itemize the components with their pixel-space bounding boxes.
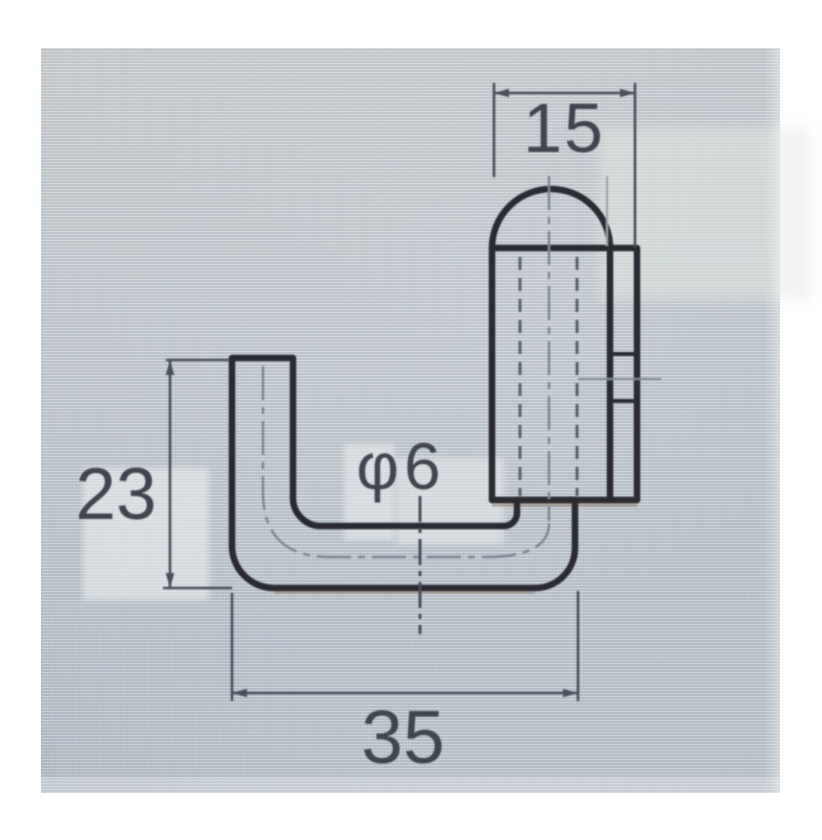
arrow-right-icon <box>563 689 578 698</box>
dimension-arrowheads <box>166 89 635 698</box>
screenshot-root: 15 23 35 φ6 <box>0 0 822 840</box>
arrow-left-icon <box>494 89 509 98</box>
head-dome-arc <box>492 189 610 248</box>
photo-chromatic-fringe <box>274 505 637 592</box>
collar-band-marks <box>610 354 637 401</box>
arrow-down-icon <box>166 573 175 588</box>
dim-arm-height <box>164 360 231 588</box>
label-arm-height: 23 <box>75 454 156 535</box>
label-base-width: 35 <box>361 695 444 779</box>
arrow-right-icon <box>620 89 635 98</box>
dim-base-width <box>232 592 578 700</box>
label-head-width: 15 <box>523 89 605 167</box>
arrow-up-icon <box>166 360 175 375</box>
technical-drawing: 15 23 35 φ6 <box>0 0 822 840</box>
arrow-left-icon <box>232 689 247 698</box>
label-bar-diameter: φ6 <box>356 429 446 503</box>
